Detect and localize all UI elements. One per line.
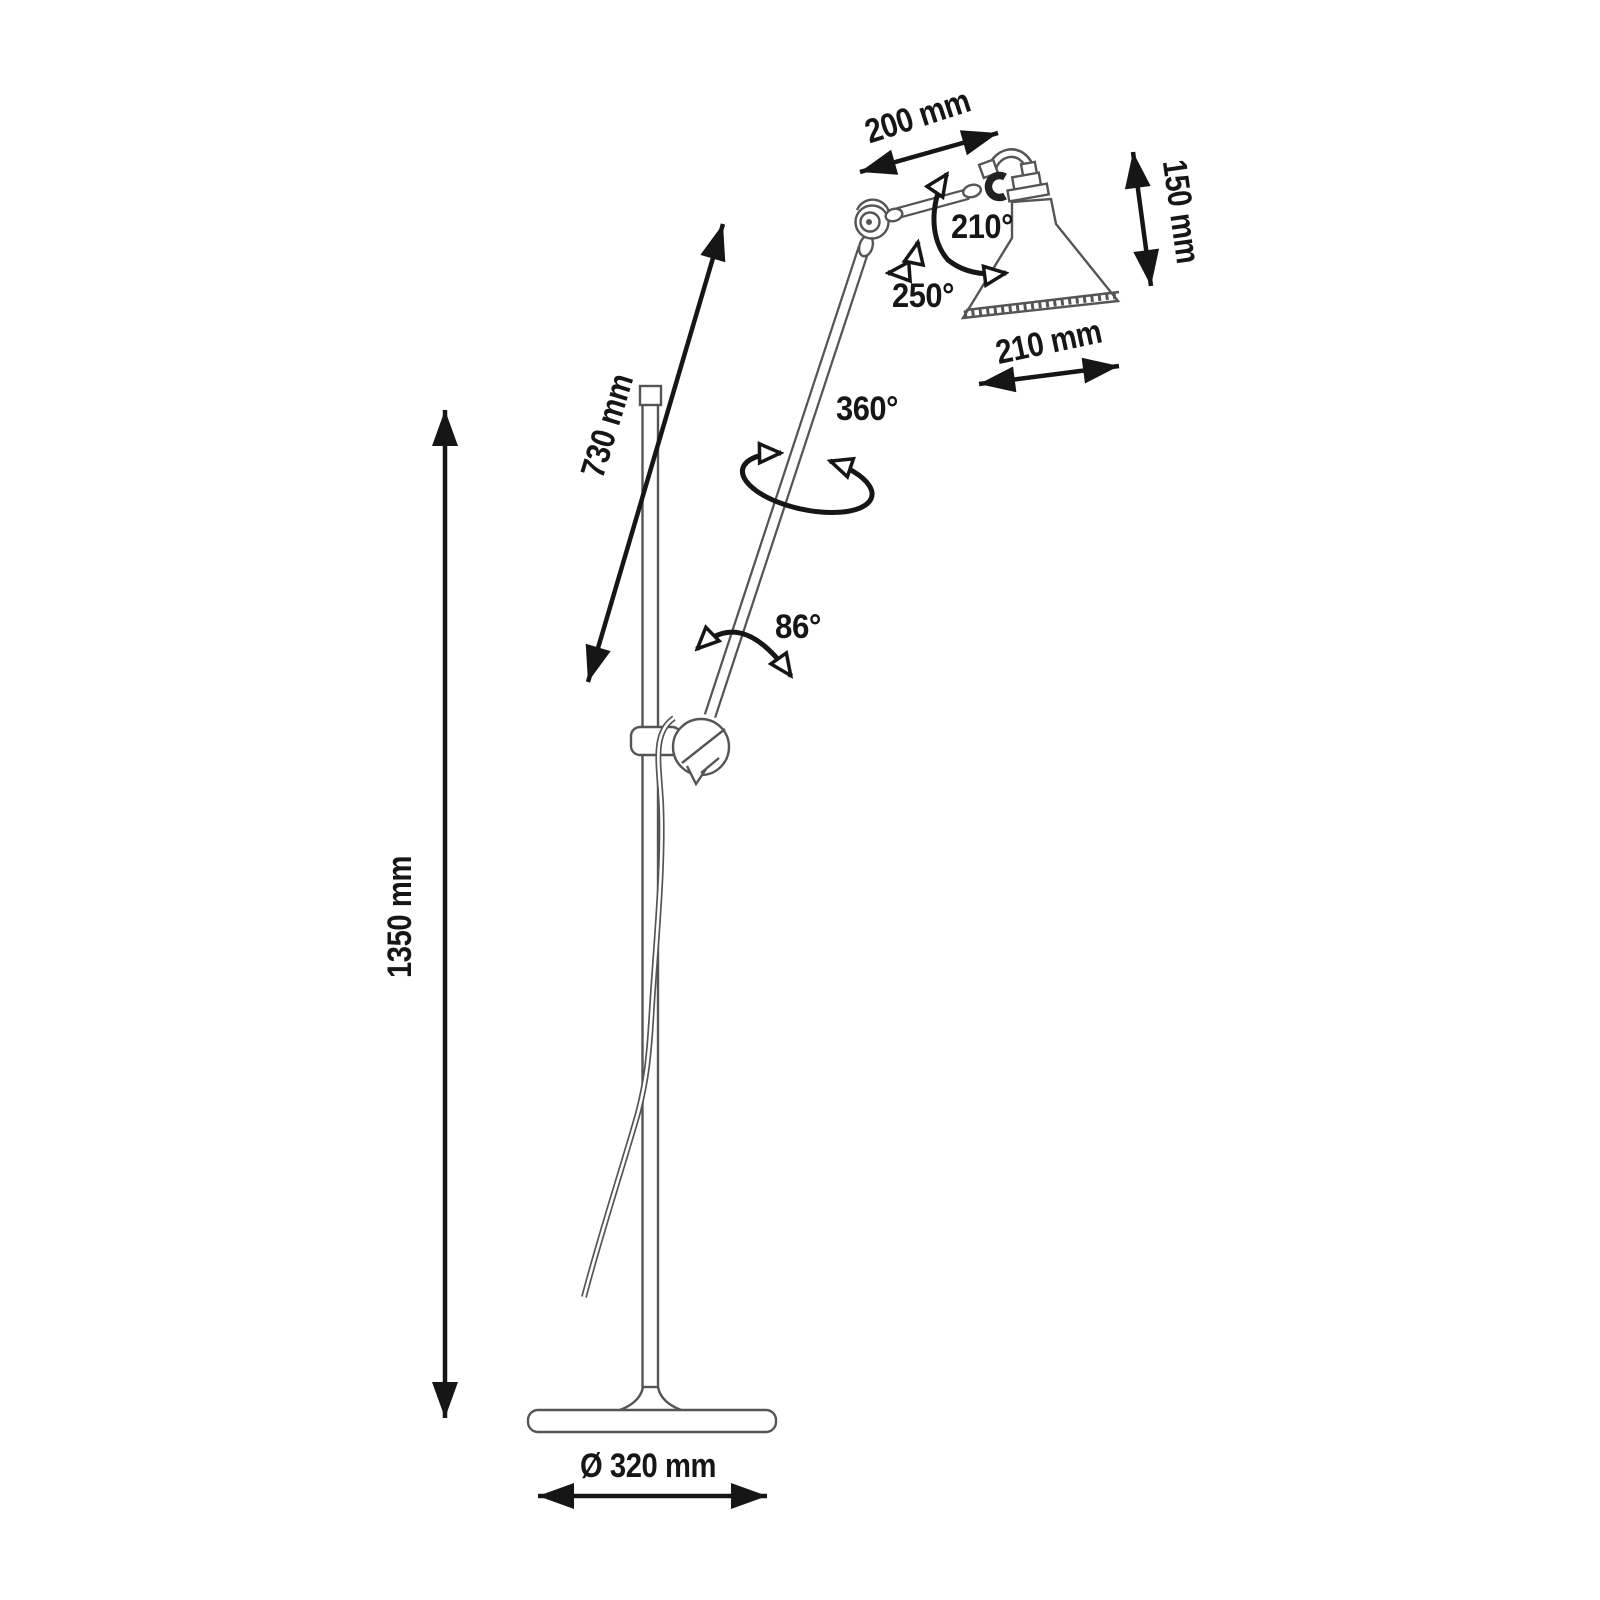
pole-cap <box>640 386 661 405</box>
base <box>528 1410 776 1432</box>
dim-label-head-height: 150 mm <box>1155 157 1207 265</box>
angle-arc-elbow-rotation <box>888 242 918 273</box>
arm-end-lug <box>962 183 982 199</box>
diagram-canvas: 1350 mm 730 mm 200 mm 150 mm 210 mm Ø 32… <box>0 0 1600 1600</box>
dim-label-upper-arm: 200 mm <box>860 82 974 152</box>
angle-label-shade-rotation: 210° <box>951 208 1013 246</box>
knob-wedge <box>687 766 706 784</box>
angle-label-arm-axis: 360° <box>836 390 898 428</box>
angle-label-elbow-rotation: 250° <box>892 277 954 315</box>
dim-label-shade-width: 210 mm <box>992 313 1105 372</box>
elbow-pin <box>866 219 872 225</box>
floor-lamp-dimension-diagram: 1350 mm 730 mm 200 mm 150 mm 210 mm Ø 32… <box>0 0 1600 1600</box>
power-cable <box>584 718 674 1297</box>
pole <box>643 400 659 1387</box>
head-clamp <box>988 176 1005 198</box>
rotation-ellipse-arm-axis <box>742 453 872 513</box>
dim-label-lower-arm: 730 mm <box>574 370 641 482</box>
elbow-joint <box>856 200 890 258</box>
angle-label-lower-joint: 86° <box>775 608 821 646</box>
base-flare <box>620 1387 681 1410</box>
dim-label-base-diameter: Ø 320 mm <box>580 1447 716 1485</box>
lamp-head <box>979 153 1049 201</box>
dim-arrow-head-height <box>1133 152 1151 286</box>
dim-label-total-height: 1350 mm <box>381 856 419 978</box>
